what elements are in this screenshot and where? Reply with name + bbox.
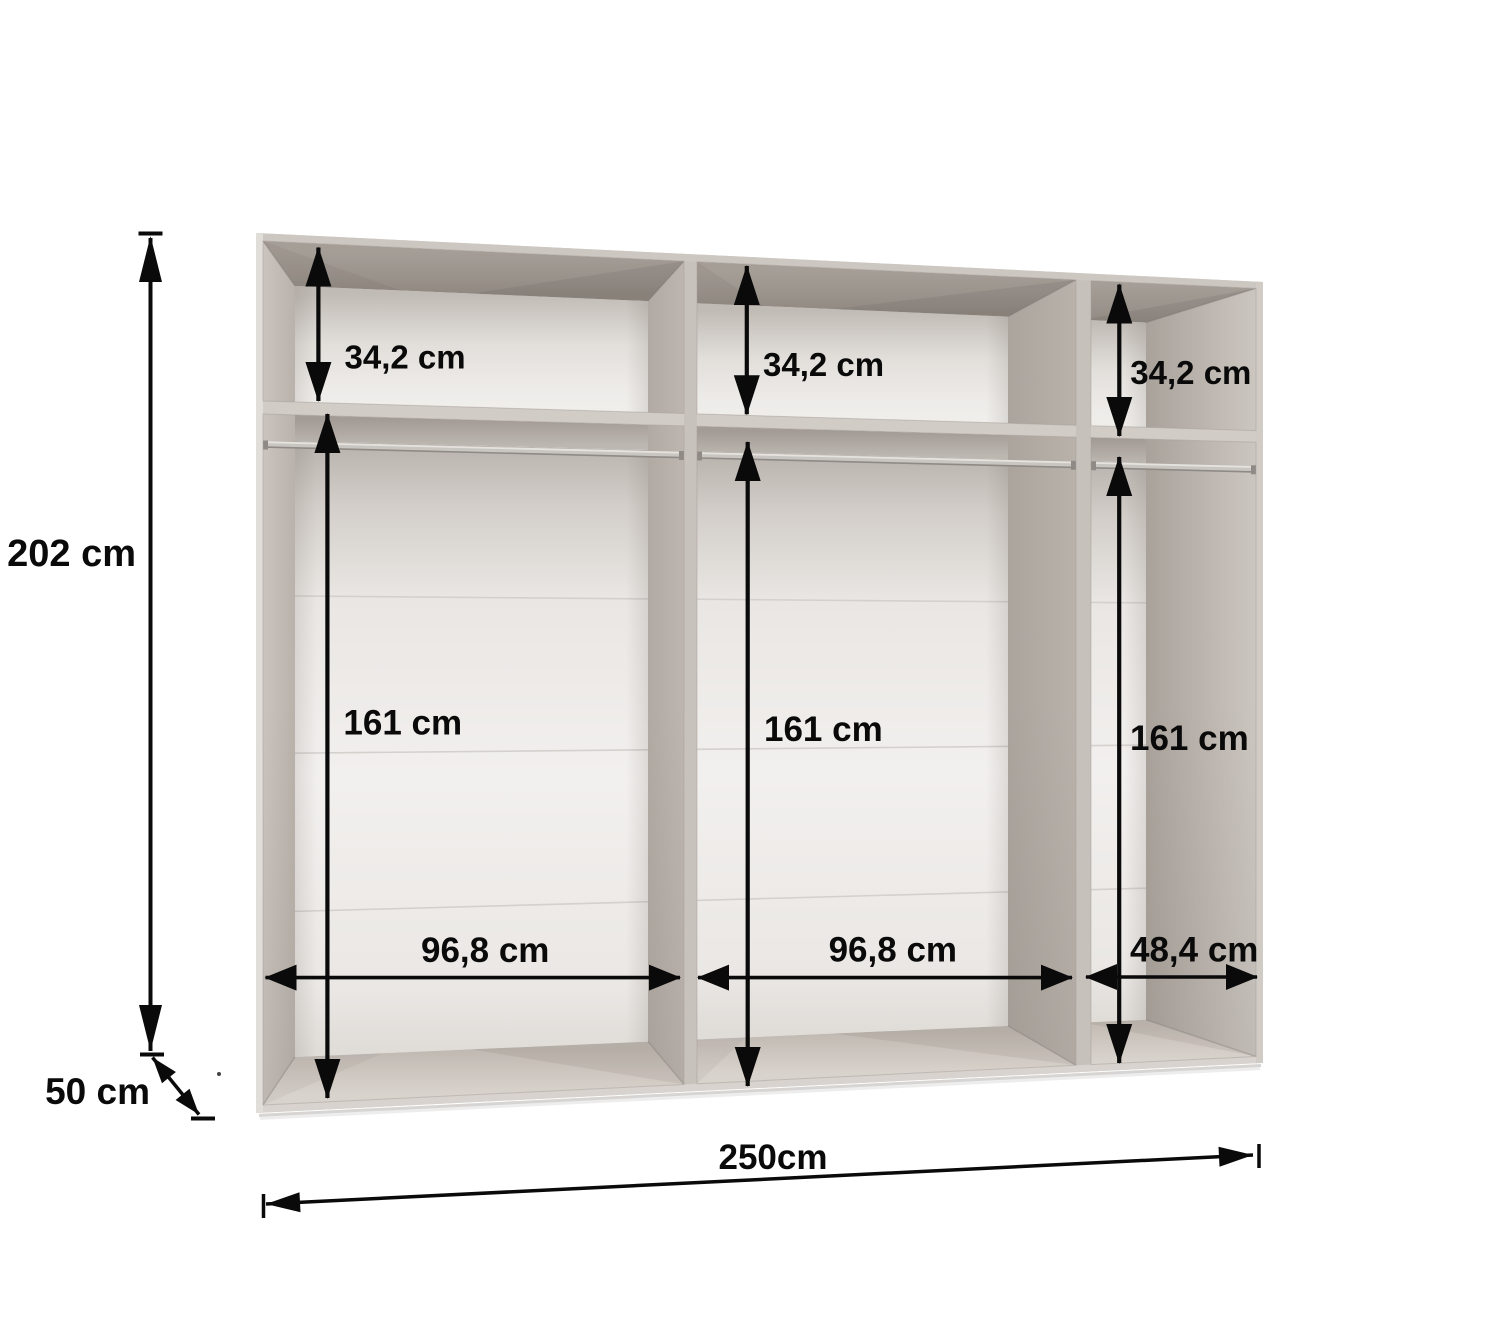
svg-text:50 cm: 50 cm xyxy=(45,1071,150,1112)
svg-text:202 cm: 202 cm xyxy=(7,533,136,575)
svg-text:34,2 cm: 34,2 cm xyxy=(1130,354,1251,391)
svg-text:34,2 cm: 34,2 cm xyxy=(763,346,884,383)
svg-text:161 cm: 161 cm xyxy=(1130,719,1249,758)
svg-text:96,8 cm: 96,8 cm xyxy=(421,931,549,970)
svg-text:34,2 cm: 34,2 cm xyxy=(345,339,466,376)
svg-text:161 cm: 161 cm xyxy=(343,704,462,743)
svg-text:250cm: 250cm xyxy=(719,1138,828,1177)
svg-text:48,4 cm: 48,4 cm xyxy=(1130,931,1258,970)
svg-text:161 cm: 161 cm xyxy=(764,710,883,749)
svg-text:96,8 cm: 96,8 cm xyxy=(829,931,957,970)
